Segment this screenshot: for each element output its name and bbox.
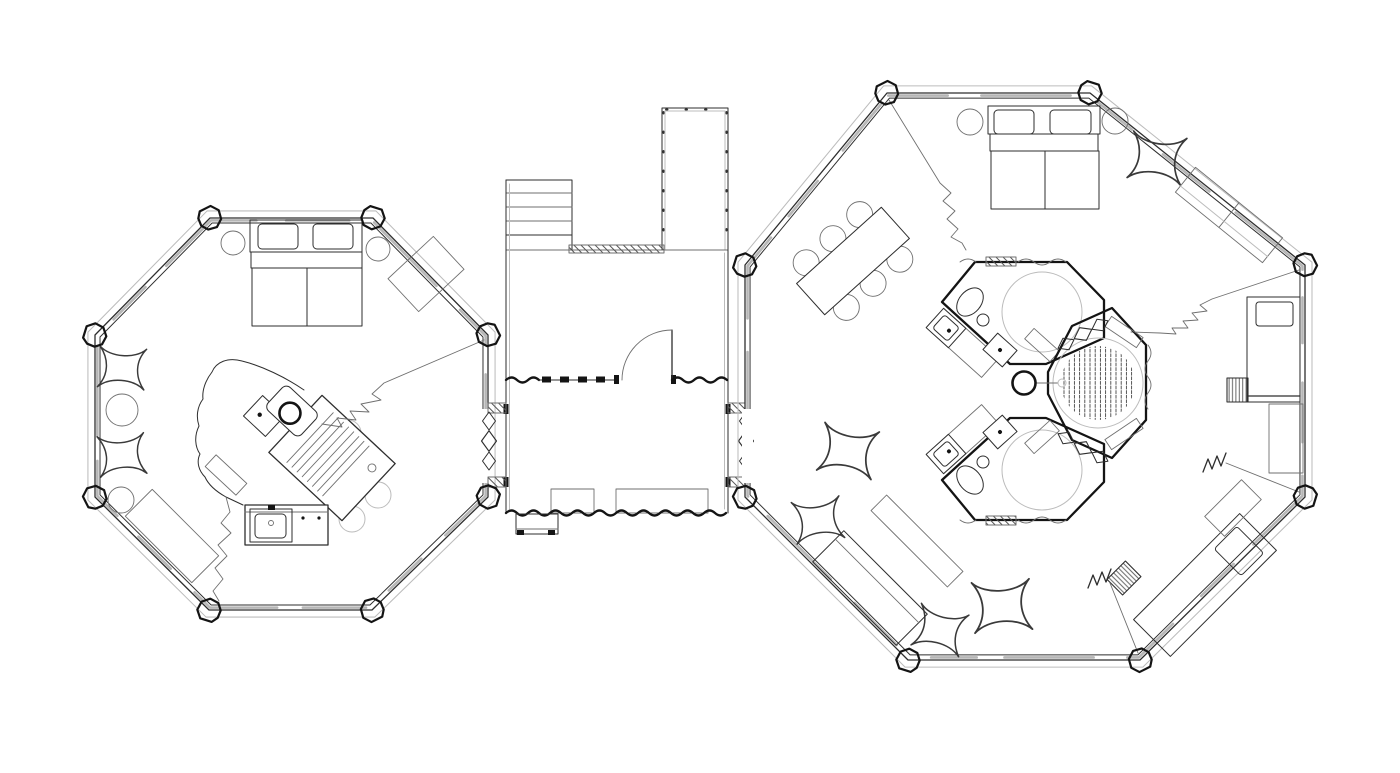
door-jamb — [614, 375, 619, 384]
nightstand-circle — [366, 237, 390, 261]
toilet-tank — [977, 456, 989, 468]
leader-line — [1226, 463, 1299, 492]
wavy-log-wall — [672, 378, 727, 383]
spring-symbol — [1088, 569, 1111, 588]
central-pod — [926, 257, 1151, 525]
faucet — [268, 505, 275, 510]
roof-deck-outline — [662, 108, 728, 250]
pillow — [1050, 110, 1091, 134]
floor-plan-page — [0, 0, 1400, 773]
island-bench — [205, 455, 247, 495]
hatched-stool — [1227, 378, 1248, 402]
star-pouf — [972, 579, 1033, 633]
star-pouf — [791, 496, 844, 544]
entry-room — [506, 489, 726, 535]
headboard — [250, 220, 362, 252]
staircase — [506, 180, 572, 250]
floor-plan-drawing — [0, 0, 1400, 773]
spring-symbol — [1203, 453, 1226, 472]
daybed-east — [1227, 297, 1303, 473]
center-column — [1013, 372, 1036, 395]
link-stub — [488, 403, 506, 413]
hatched-stool — [1107, 561, 1141, 595]
double-bed — [988, 106, 1100, 209]
tub-circle — [1002, 430, 1082, 510]
threshold — [986, 257, 1016, 266]
leader-zigzag — [322, 340, 484, 427]
wall-dash — [560, 377, 569, 383]
pillow — [1256, 302, 1293, 326]
star-pouf — [911, 603, 969, 656]
knob — [317, 516, 320, 519]
wall-dash — [578, 377, 587, 383]
wall-dash — [596, 377, 605, 383]
daybed-southeast — [1107, 480, 1276, 657]
star-pouf — [1127, 131, 1187, 185]
side-table-circle — [108, 487, 134, 513]
table-top — [797, 207, 910, 314]
wc-pod-upper — [926, 257, 1104, 377]
shower-head — [1058, 379, 1066, 387]
door-swing-arc — [622, 330, 672, 380]
side-table-circle — [106, 394, 138, 426]
knob — [301, 516, 304, 519]
sofa-southwest — [813, 531, 928, 646]
floor-rug — [871, 495, 963, 587]
pod-door-leaf — [1025, 420, 1060, 453]
double-bed — [250, 220, 362, 326]
blanket-fold — [990, 134, 1098, 151]
side-rect — [1269, 404, 1303, 473]
threshold-mat — [551, 489, 594, 513]
star-pouf — [817, 422, 880, 479]
kitchen-island — [196, 360, 395, 601]
threshold-mat — [616, 489, 708, 513]
dining-table — [782, 191, 924, 331]
right-cabin — [738, 86, 1312, 667]
kitchen-counter — [245, 505, 328, 545]
entry-link — [482, 108, 754, 535]
nightstand-circle — [957, 109, 983, 135]
south-wall — [506, 330, 727, 384]
leader-zigzag — [889, 100, 966, 250]
left-cabin — [88, 211, 495, 617]
shower-mat-hatch — [1064, 340, 1132, 426]
pillow — [994, 110, 1034, 134]
corridor-walls — [504, 180, 731, 513]
pillow — [313, 224, 353, 249]
wavy-log-wall — [506, 378, 539, 383]
wall-dash — [542, 377, 551, 383]
nightstand-circle — [221, 231, 245, 255]
entry-stoop — [516, 514, 558, 535]
star-pouf — [97, 433, 147, 478]
threshold — [986, 516, 1016, 525]
nightstand — [1205, 480, 1262, 537]
wall-bench-two-seat — [1175, 167, 1282, 262]
hatched-wall — [569, 245, 664, 253]
pod-wall — [942, 262, 1104, 364]
star-pouf — [97, 346, 146, 390]
leader-zigzag — [213, 497, 231, 601]
blanket-fold — [251, 252, 362, 268]
pillow — [258, 224, 298, 249]
